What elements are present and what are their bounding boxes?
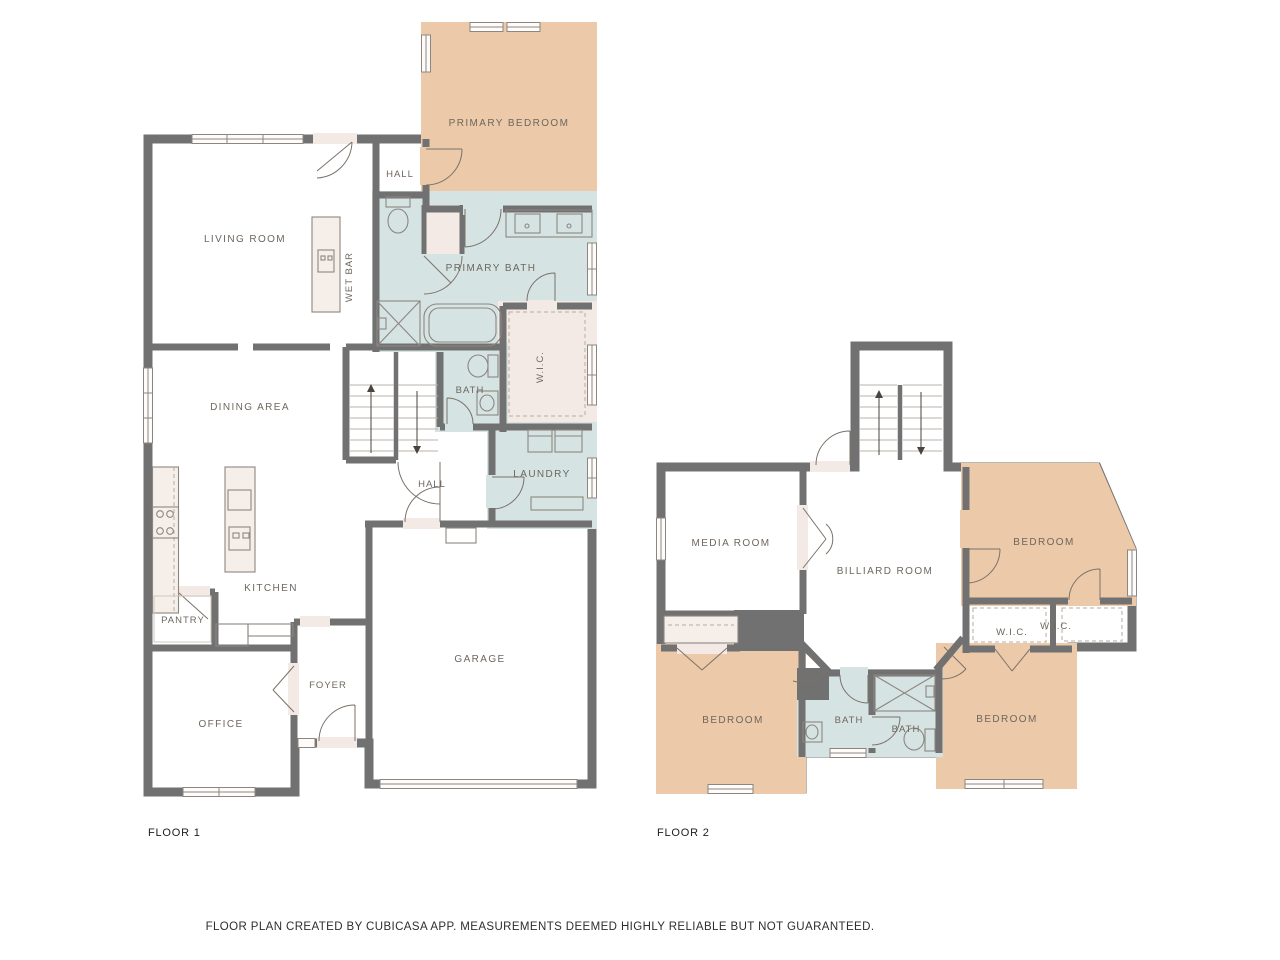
kitchen-cabinet [216, 624, 248, 646]
label-bedroom-se: BEDROOM [976, 714, 1037, 725]
label-pantry: PANTRY [161, 615, 205, 626]
room-bedroom-ne [961, 463, 1136, 606]
label-wet-bar: WET BAR [344, 252, 355, 302]
label-hall-upper: HALL [386, 169, 414, 180]
kitchen-island [225, 467, 255, 572]
label-wic-floor1: W.I.C. [535, 351, 546, 383]
label-garage: GARAGE [454, 654, 505, 665]
label-kitchen: KITCHEN [244, 583, 298, 594]
kitchen-cabinet [248, 624, 293, 636]
label-office: OFFICE [198, 719, 243, 730]
label-wic-right: W.I.C. [1040, 621, 1072, 632]
room-wic-floor1 [498, 301, 597, 432]
kitchen-counter [153, 467, 179, 613]
label-bath-right: BATH [892, 724, 921, 735]
garage-step [446, 528, 476, 543]
wall-block [734, 610, 804, 651]
disclaimer: FLOOR PLAN CREATED BY CUBICASA APP. MEAS… [206, 921, 875, 933]
label-bedroom-sw: BEDROOM [702, 715, 763, 726]
label-dining-area: DINING AREA [210, 402, 290, 413]
floor2-title: FLOOR 2 [657, 827, 710, 839]
floor-plan-page: LIVING ROOM WET BAR HALL PRIMARY BEDROOM… [0, 0, 1280, 960]
room-primary-bedroom [421, 22, 597, 210]
label-billiard-room: BILLIARD ROOM [837, 566, 934, 577]
label-bedroom-ne: BEDROOM [1013, 537, 1074, 548]
label-media-room: MEDIA ROOM [691, 538, 770, 549]
floor2-plan: MEDIA ROOM BILLIARD ROOM BEDROOM W.I.C. … [656, 346, 1137, 839]
label-living-room: LIVING ROOM [204, 234, 286, 245]
closet-shelf [664, 616, 738, 643]
stairs-floor2 [859, 385, 942, 460]
label-primary-bath: PRIMARY BATH [446, 263, 537, 274]
label-bath-floor1: BATH [456, 385, 485, 396]
floor-plan-canvas: LIVING ROOM WET BAR HALL PRIMARY BEDROOM… [0, 0, 1280, 960]
label-primary-bedroom: PRIMARY BEDROOM [449, 118, 570, 129]
floor1-plan: LIVING ROOM WET BAR HALL PRIMARY BEDROOM… [144, 22, 598, 839]
label-bath-left: BATH [835, 715, 864, 726]
label-laundry: LAUNDRY [513, 469, 570, 480]
label-foyer: FOYER [309, 680, 347, 691]
label-wic-left: W.I.C. [996, 627, 1028, 638]
stairs-up-arrow-icon [875, 390, 883, 398]
stairs-down-arrow-icon [413, 446, 421, 454]
label-hall: HALL [418, 479, 446, 490]
floor1-title: FLOOR 1 [148, 827, 201, 839]
wet-bar-island [312, 217, 340, 312]
